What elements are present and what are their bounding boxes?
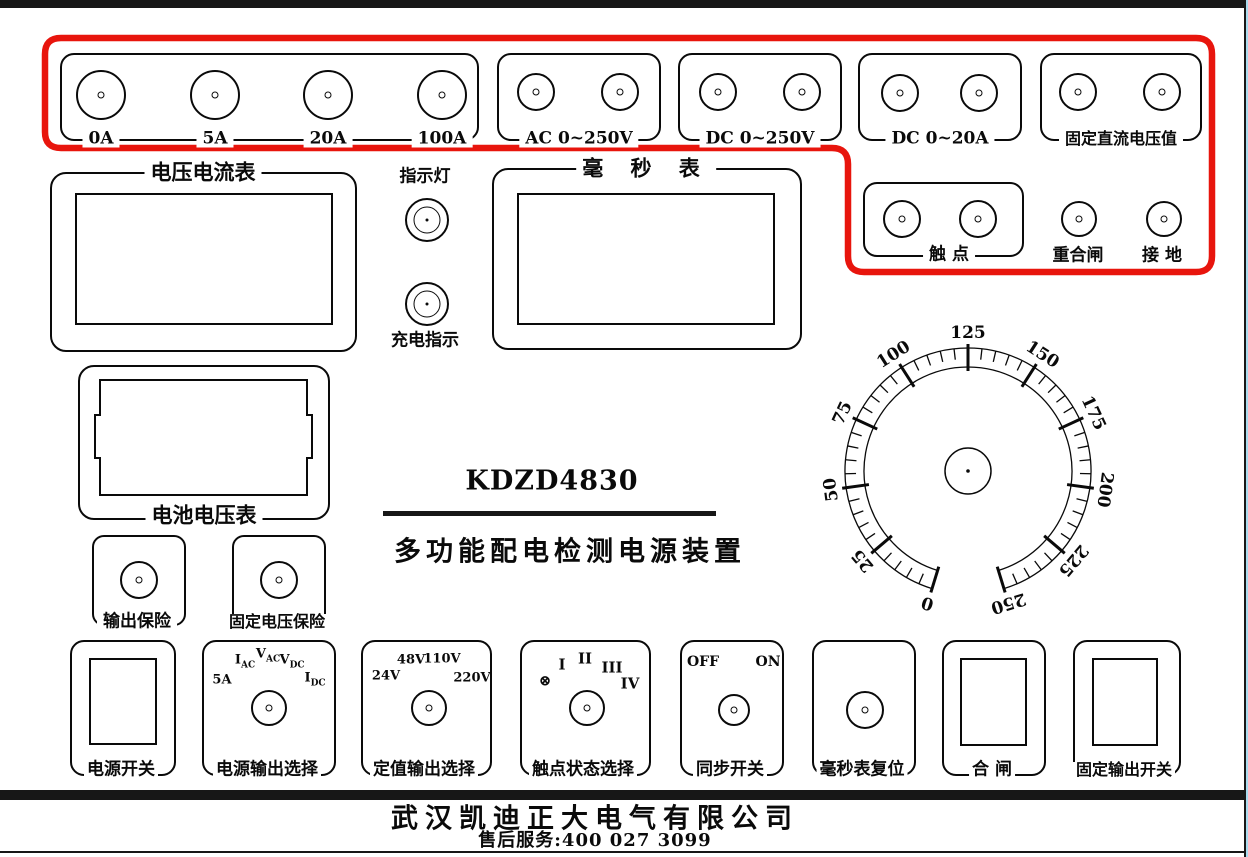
terminal-label-20a: 20A [304,131,353,148]
ms-reset-button[interactable] [846,691,884,729]
dial-minor-tick [914,361,919,371]
dial-major-tick [931,567,939,593]
terminal-center-dot [617,89,624,96]
dial-minor-tick [895,561,902,570]
dial-minor-tick [848,446,859,448]
dial-minor-tick [859,522,869,527]
terminal-center-dot [1159,89,1166,96]
dial-minor-tick [1067,522,1077,527]
ms-reset-button-box[interactable] [812,640,916,776]
volt-amp-meter-label: 电压电流表 [145,162,262,183]
terminal-center-dot [276,577,283,584]
fixed-dc-group-label: 固定直流电压值 [1059,131,1183,147]
dial-minor-tick [880,385,888,393]
title-underline [383,511,716,516]
dial-minor-tick [1035,561,1042,570]
close-switch-rocker[interactable] [960,658,1027,746]
dial-minor-tick [1078,446,1089,448]
dial-major-tick [1059,418,1084,429]
dial-knob-dot [966,469,970,473]
contact-terminal-right[interactable] [959,200,997,238]
terminal-label-5a: 5A [196,131,233,148]
indicator-lamp-dot [426,219,429,222]
sync-switch-label: 同步开关 [693,762,767,779]
battery-meter-screen [88,372,320,504]
dc-current-group-label: DC 0~20A [885,131,994,148]
dial-tick-label: 50 [820,476,843,502]
dial-minor-tick [851,432,861,435]
dc-current-terminal-group: DC 0~20A [858,53,1022,141]
ac-voltage-group-label: AC 0~250V [519,131,638,148]
output-fuse-cap[interactable] [120,561,158,599]
fixed-pos-48v: 48V [397,654,425,667]
dial-minor-tick [981,349,982,360]
millisecond-meter [492,168,802,350]
dial-tick-label: 100 [873,337,914,373]
power-switch-label: 电源开关 [84,762,158,779]
dial-minor-tick [940,351,942,362]
contact-terminal-left[interactable] [883,200,921,238]
charging-lamp [405,282,449,326]
dial-major-tick [900,364,915,387]
sync-switch-knob[interactable] [718,694,750,726]
reclose-terminal[interactable] [1061,201,1097,237]
dial-minor-tick [1073,511,1083,515]
dial-minor-tick [1013,574,1017,584]
dial-minor-tick [853,511,863,515]
dial-minor-tick [1074,432,1084,435]
source-pos-5a: 5A [212,674,231,687]
terminal-center-dot [98,92,105,99]
ac-voltage-terminal-left[interactable] [517,73,555,111]
output-adjust-dial[interactable]: 0255075100125150175200225250 [818,321,1118,621]
dial-minor-tick [1024,568,1030,578]
terminal-20a[interactable] [303,70,353,120]
dial-minor-tick [866,533,875,539]
indicator-lamp [405,198,449,242]
dial-major-tick [853,418,878,429]
dial-minor-tick [1077,499,1088,502]
dc-voltage-terminal-left[interactable] [699,73,737,111]
dc-voltage-terminal-group: DC 0~250V [678,53,842,141]
dial-tick-label: 250 [988,588,1028,618]
dial-minor-tick [884,553,892,561]
indicator-lamp-label: 指示灯 [394,169,457,186]
dial-minor-tick [993,351,995,362]
terminal-100a[interactable] [417,70,467,120]
device-name: 多功能配电检测电源装置 [394,530,746,569]
dc-current-terminal-left[interactable] [881,74,919,112]
terminal-center-dot [1075,89,1082,96]
fixed-output-select-label: 定值输出选择 [370,762,478,779]
dial-minor-tick [1064,407,1073,413]
dc-voltage-terminal-right[interactable] [783,73,821,111]
dial-major-tick [871,536,892,553]
battery-meter-label: 电池电压表 [146,505,263,526]
dial-minor-tick [1080,460,1091,461]
power-switch[interactable] [70,640,176,776]
ground-terminal[interactable] [1146,201,1182,237]
charging-lamp-dot [426,303,429,306]
fixed-pos-110v: 110V [423,653,460,666]
source-select-knob[interactable] [251,690,287,726]
ms-reset-label: 毫秒表复位 [817,762,908,779]
terminal-center-dot [799,89,806,96]
contact-state-select-knob[interactable] [569,690,605,726]
terminal-center-dot [212,92,219,99]
terminal-center-dot [325,92,332,99]
fixed-voltage-fuse-cap[interactable] [260,561,298,599]
sync-on-label: ON [756,655,781,669]
battery-screen-outline [95,380,312,495]
knob-center-dot [266,705,273,712]
terminal-center-dot [715,89,722,96]
dial-tick-label: 200 [1092,471,1117,509]
fixed-output-switch-rocker[interactable] [1092,658,1158,746]
dial-major-tick [1022,364,1037,387]
knob-center-dot [862,707,869,714]
terminal-center-dot [976,90,983,97]
terminal-center-dot [897,90,904,97]
contact-pos-off: ⊗ [539,674,552,689]
dial-tick-label: 125 [950,323,986,343]
charging-lamp-label: 充电指示 [385,333,465,350]
source-pos-vac: VAC [256,648,280,665]
dial-minor-tick [1005,355,1009,365]
dial-minor-tick [1044,553,1052,561]
reclose-label: 重合闸 [1047,248,1110,265]
dc-current-terminal-right[interactable] [960,74,998,112]
dial-tick-label: 150 [1022,337,1063,373]
dial-tick-label: 175 [1077,393,1110,434]
contact-state-select-label: 触点状态选择 [529,762,637,779]
knob-center-dot [584,705,591,712]
fixed-pos-220v: 220V [453,672,490,685]
fixed-pos-24v: 24V [372,670,400,683]
dial-minor-tick [890,376,897,385]
contact-pos-2: II [578,652,592,667]
sync-off-label: OFF [687,655,719,669]
ground-label: 接 地 [1136,248,1188,265]
current-terminal-group: 0A 5A 20A 100A [60,53,479,141]
source-select-label: 电源输出选择 [213,762,321,779]
close-switch[interactable] [942,640,1046,776]
dial-minor-tick [954,349,955,360]
contact-terminal-group: 触 点 [863,182,1024,257]
dial-minor-tick [863,407,872,413]
dial-major-tick [1044,536,1065,553]
dc-voltage-group-label: DC 0~250V [700,131,821,148]
terminal-center-dot [136,577,143,584]
fixed-dc-terminal-right[interactable] [1143,73,1181,111]
terminal-center-dot [439,92,446,99]
dial-minor-tick [846,460,857,461]
dial-minor-tick [871,396,880,403]
fixed-output-switch[interactable] [1073,640,1181,776]
knob-center-dot [426,705,433,712]
dial-minor-tick [1048,385,1056,393]
terminal-center-dot [1076,216,1083,223]
source-pos-idc: IDC [304,672,325,689]
dial-minor-tick [906,568,912,578]
terminal-label-0a: 0A [82,131,119,148]
model-number: KDZD4830 [465,466,638,497]
fixed-output-select-switch[interactable]: 24V 48V 110V 220V [361,640,492,776]
source-pos-iac: IAC [235,654,255,671]
fixed-voltage-fuse-label: 固定电压保险 [223,614,331,630]
fixed-dc-terminal-group: 固定直流电压值 [1040,53,1202,141]
fixed-dc-terminal-left[interactable] [1059,73,1097,111]
terminal-label-100a: 100A [412,131,473,148]
output-fuse-label: 输出保险 [97,614,177,631]
panel-canvas: 0A 5A 20A 100A AC 0~250V DC 0~250V DC 0~… [0,0,1248,857]
terminal-center-dot [975,216,982,223]
dial-minor-tick [1039,376,1046,385]
terminal-0a[interactable] [76,70,126,120]
dial-major-tick [997,567,1005,593]
contact-pos-1: I [558,658,565,673]
millisecond-meter-screen [517,193,775,325]
dial-tick-label: 75 [829,398,857,428]
source-select-switch[interactable]: 5A IAC VAC VDC IDC [202,640,336,776]
contact-pos-4: IV [621,677,640,692]
service-hotline: 售后服务:400 027 3099 [478,826,711,852]
dial-minor-tick [1017,361,1022,371]
dial-tick-label: 0 [919,592,936,615]
dial-minor-tick [1061,533,1070,539]
close-switch-label: 合 闸 [969,762,1015,779]
dial-tick-label: 225 [1054,540,1092,580]
terminal-center-dot [1161,216,1168,223]
millisecond-meter-label: 毫 秒 表 [576,158,716,179]
fixed-output-switch-label: 固定输出开关 [1073,762,1175,778]
dial-minor-tick [849,499,860,502]
terminal-center-dot [899,216,906,223]
contact-group-label: 触 点 [923,247,975,264]
dial-minor-tick [919,574,923,584]
contact-pos-3: III [601,661,622,676]
power-switch-rocker[interactable] [89,658,157,745]
knob-center-dot [731,707,738,714]
sync-switch[interactable]: OFF ON [680,640,784,776]
ac-voltage-terminal-group: AC 0~250V [497,53,661,141]
volt-amp-meter [50,172,357,352]
fixed-output-select-knob[interactable] [411,690,447,726]
ac-voltage-terminal-right[interactable] [601,73,639,111]
dial-minor-tick [927,355,931,365]
terminal-5a[interactable] [190,70,240,120]
source-pos-vdc: VDC [279,654,304,671]
contact-state-select-switch[interactable]: ⊗ I II III IV [520,640,651,776]
volt-amp-meter-screen [75,193,333,325]
dial-minor-tick [1056,396,1065,403]
terminal-center-dot [533,89,540,96]
dial-scale-svg: 0255075100125150175200225250 [818,321,1118,621]
